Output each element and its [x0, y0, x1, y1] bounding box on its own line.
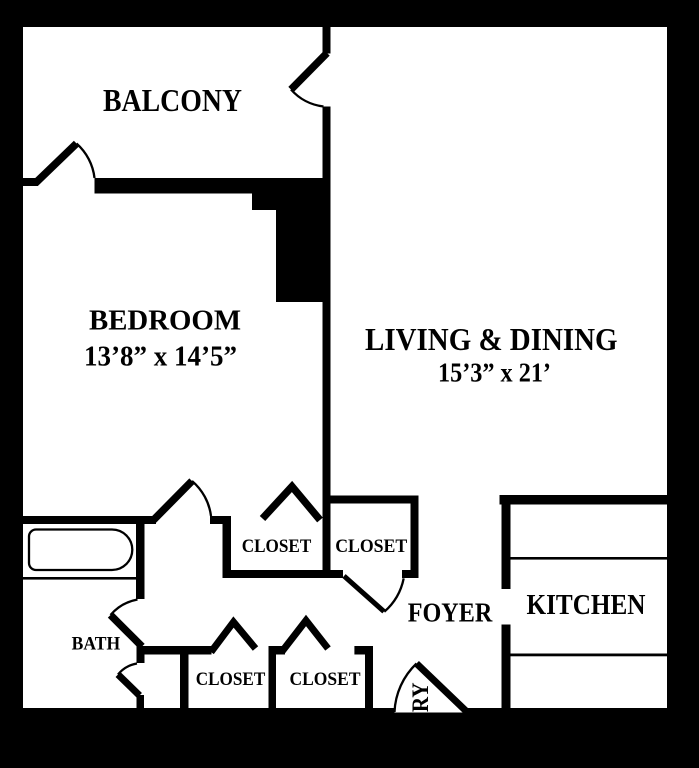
- svg-text:FOYER: FOYER: [408, 597, 494, 628]
- svg-text:BEDROOM: BEDROOM: [89, 305, 241, 337]
- svg-text:CLOSET: CLOSET: [242, 536, 312, 557]
- svg-text:15’3” x 21’: 15’3” x 21’: [438, 358, 551, 388]
- svg-text:CLOSET: CLOSET: [290, 669, 361, 690]
- svg-text:CLOSET: CLOSET: [196, 669, 266, 690]
- svg-text:BATH: BATH: [72, 634, 121, 655]
- svg-text:CLOSET: CLOSET: [335, 536, 407, 557]
- svg-text:LIVING & DINING: LIVING & DINING: [365, 321, 618, 357]
- svg-text:BALCONY: BALCONY: [103, 82, 242, 118]
- svg-text:KITCHEN: KITCHEN: [527, 589, 646, 621]
- svg-text:13’8” x 14’5”: 13’8” x 14’5”: [84, 341, 237, 373]
